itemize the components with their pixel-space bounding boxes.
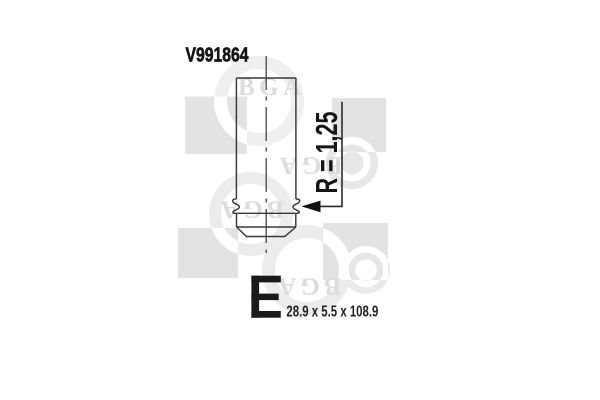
svg-text:R = 1,25: R = 1,25 bbox=[310, 111, 344, 193]
svg-text:28.9 x 5.5 x 108.9: 28.9 x 5.5 x 108.9 bbox=[286, 304, 378, 321]
svg-text:BGA: BGA bbox=[278, 273, 341, 300]
svg-text:V991864: V991864 bbox=[186, 45, 250, 67]
svg-text:BGA: BGA bbox=[221, 196, 284, 223]
